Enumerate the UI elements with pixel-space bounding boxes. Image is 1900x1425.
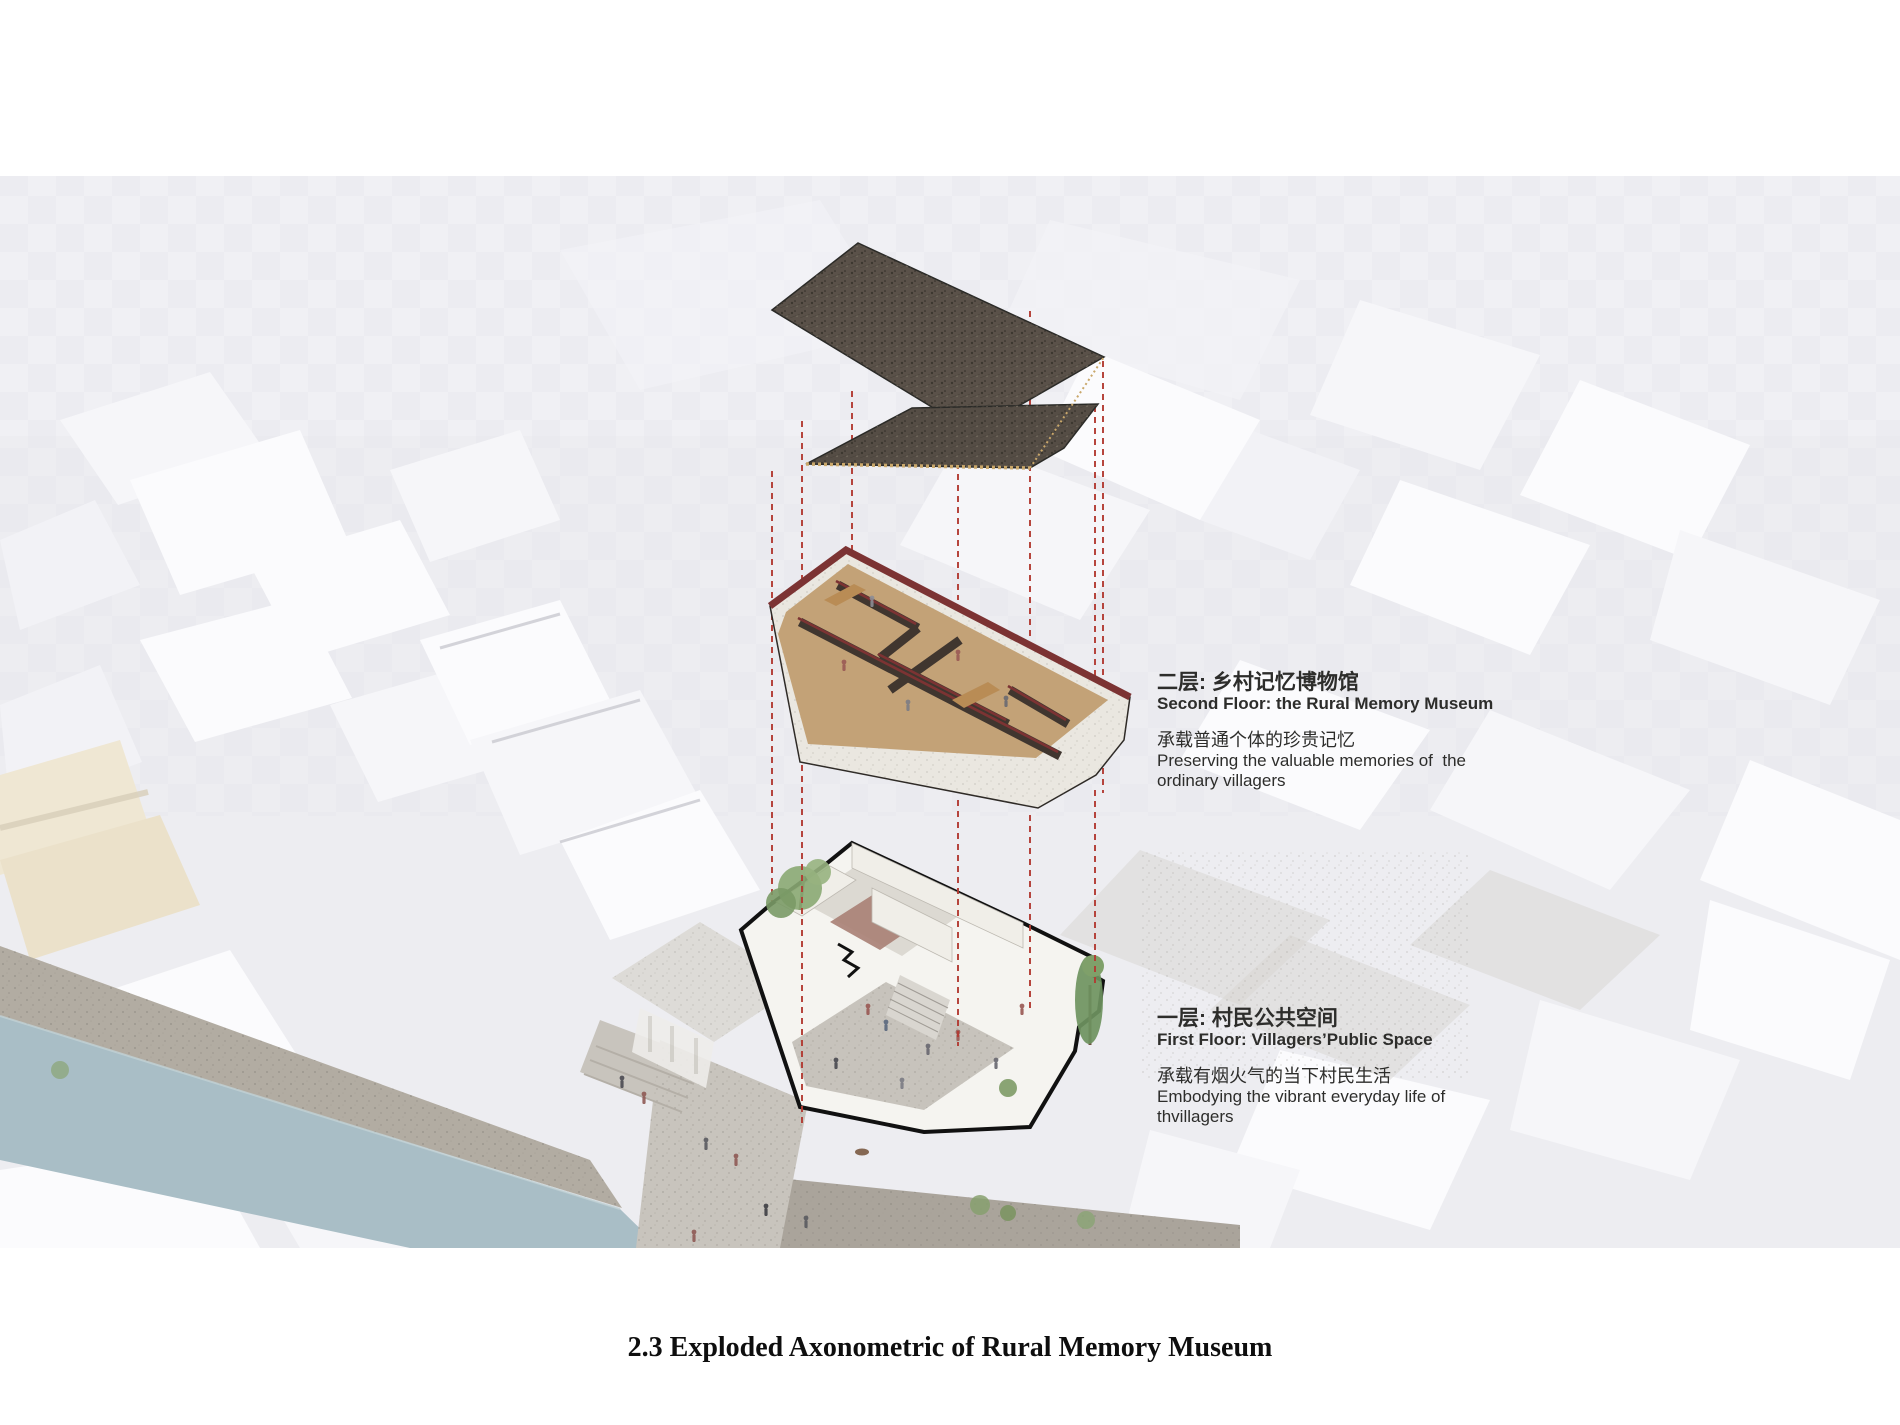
shrub xyxy=(1000,1205,1016,1221)
annotation-spacer xyxy=(1157,714,1493,730)
first-floor-title-en: First Floor: Villagers’Public Space xyxy=(1157,1030,1445,1050)
shrub xyxy=(51,1061,69,1079)
second-floor-title-en: Second Floor: the Rural Memory Museum xyxy=(1157,694,1493,714)
planter-shrub xyxy=(999,1079,1017,1097)
first-floor-desc-cn: 承载有烟火气的当下村民生活 xyxy=(1157,1066,1445,1087)
first-floor-desc-en-line1: Embodying the vibrant everyday life of xyxy=(1157,1087,1445,1107)
second-floor-annotation: 二层: 乡村记忆博物馆 Second Floor: the Rural Memo… xyxy=(1157,672,1493,791)
first-floor-desc-en-line2: thvillagers xyxy=(1157,1107,1445,1127)
shrub xyxy=(1077,1211,1095,1229)
exploded-axonometric-drawing xyxy=(0,176,1900,1248)
figure-caption: 2.3 Exploded Axonometric of Rural Memory… xyxy=(0,1332,1900,1364)
second-floor-title-cn: 二层: 乡村记忆博物馆 xyxy=(1157,672,1493,694)
first-floor-title-cn: 一层: 村民公共空间 xyxy=(1157,1008,1445,1030)
first-floor-annotation: 一层: 村民公共空间 First Floor: Villagers’Public… xyxy=(1157,1008,1445,1127)
dog xyxy=(855,1149,869,1156)
second-floor-desc-cn: 承载普通个体的珍贵记忆 xyxy=(1157,730,1493,751)
second-floor-desc-en-line2: ordinary villagers xyxy=(1157,771,1493,791)
annotation-spacer xyxy=(1157,1050,1445,1066)
shrub xyxy=(970,1195,990,1215)
second-floor-desc-en-line1: Preserving the valuable memories of the xyxy=(1157,751,1493,771)
